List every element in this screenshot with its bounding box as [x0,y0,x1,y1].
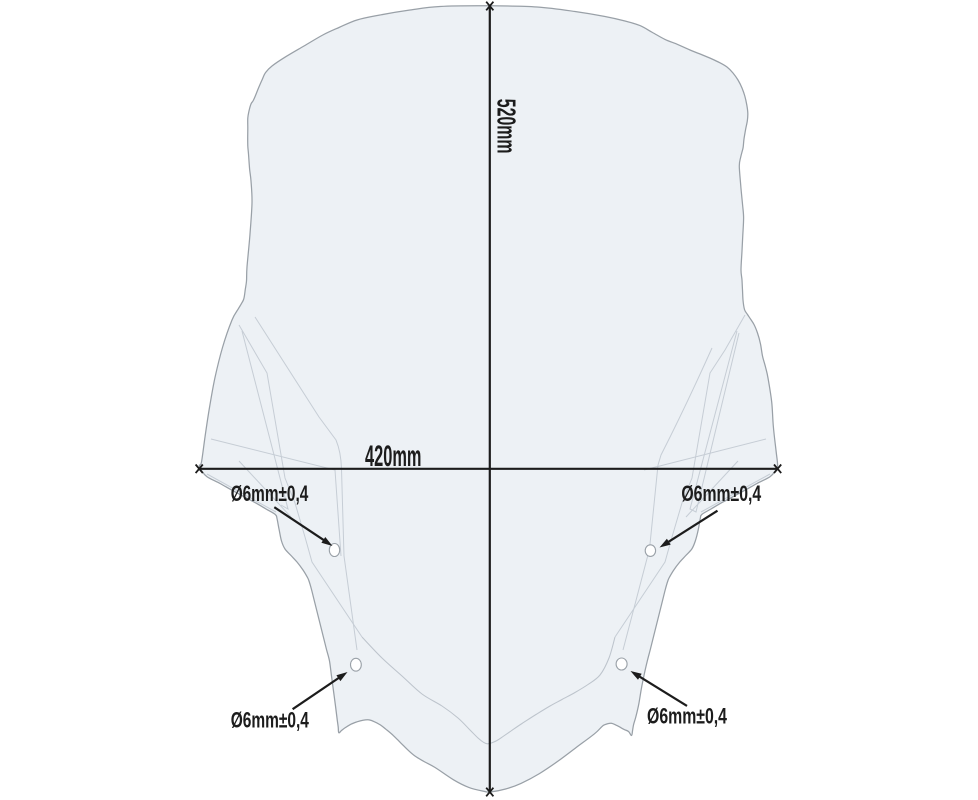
svg-text:Ø6mm±0,4: Ø6mm±0,4 [681,481,761,506]
svg-text:420mm: 420mm [365,440,422,473]
svg-text:Ø6mm±0,4: Ø6mm±0,4 [231,707,309,732]
svg-text:Ø6mm±0,4: Ø6mm±0,4 [231,481,309,506]
svg-text:520mm: 520mm [491,99,521,154]
svg-text:Ø6mm±0,4: Ø6mm±0,4 [647,703,727,728]
